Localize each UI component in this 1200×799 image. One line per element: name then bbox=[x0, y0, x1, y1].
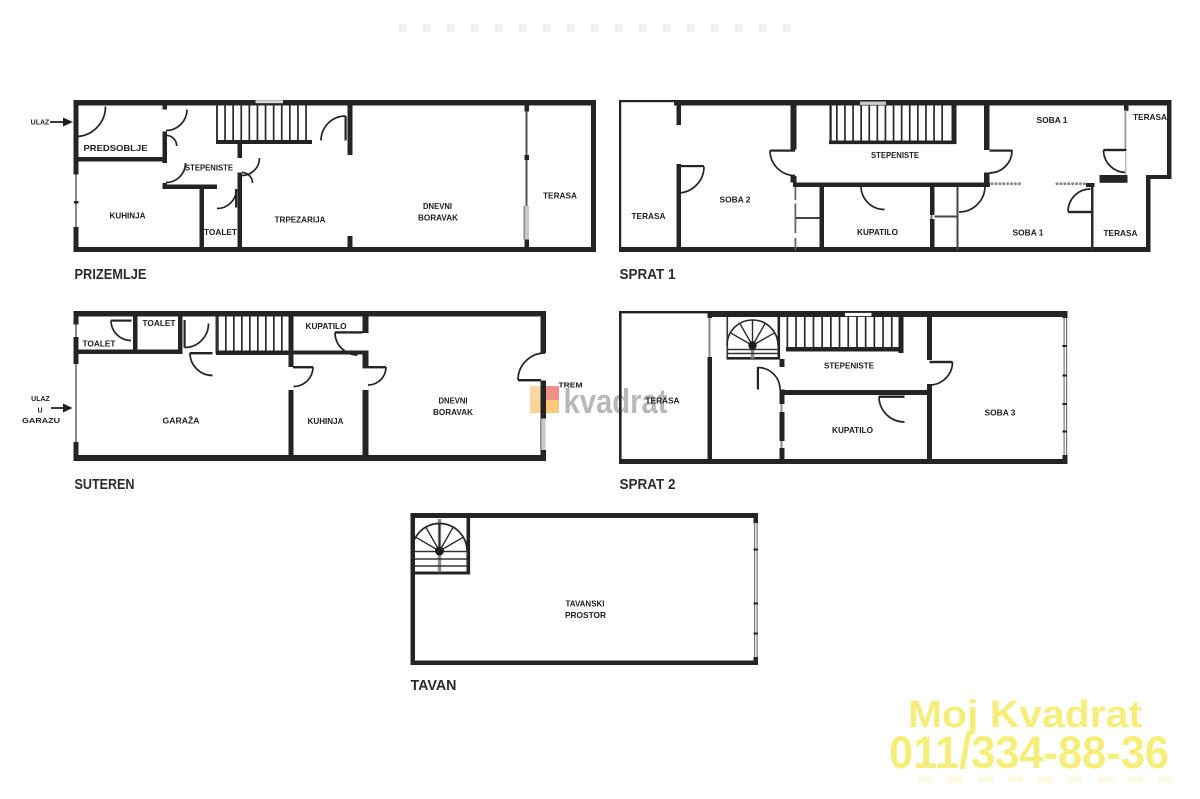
svg-text:SOBA 1: SOBA 1 bbox=[1037, 115, 1068, 125]
svg-text:STEPENISTE: STEPENISTE bbox=[871, 150, 919, 160]
svg-text:SOBA 2: SOBA 2 bbox=[720, 195, 751, 205]
svg-text:U: U bbox=[37, 408, 42, 415]
svg-text:TERASA: TERASA bbox=[1104, 228, 1138, 238]
svg-text:TERASA: TERASA bbox=[632, 211, 666, 221]
svg-text:KUPATILO: KUPATILO bbox=[857, 227, 898, 237]
svg-text:PREDSOBLJE: PREDSOBLJE bbox=[84, 143, 148, 153]
svg-text:KUPATILO: KUPATILO bbox=[832, 425, 873, 435]
svg-text:TAVAN: TAVAN bbox=[411, 677, 457, 694]
svg-text:STEPENISTE: STEPENISTE bbox=[185, 163, 233, 173]
svg-text:SOBA 3: SOBA 3 bbox=[985, 408, 1016, 418]
svg-text:TERASA: TERASA bbox=[646, 396, 680, 406]
svg-text:PROSTOR: PROSTOR bbox=[565, 610, 606, 620]
svg-text:PRIZEMLJE: PRIZEMLJE bbox=[75, 266, 147, 283]
svg-text:TREM: TREM bbox=[559, 381, 583, 390]
svg-text:TOALET: TOALET bbox=[143, 318, 177, 328]
svg-text:SOBA 1: SOBA 1 bbox=[1013, 228, 1044, 238]
svg-text:STEPENISTE: STEPENISTE bbox=[824, 361, 874, 371]
svg-text:TERASA: TERASA bbox=[1133, 112, 1167, 122]
svg-text:BORAVAK: BORAVAK bbox=[433, 407, 474, 417]
svg-text:DNEVNI: DNEVNI bbox=[423, 201, 452, 211]
svg-text:BORAVAK: BORAVAK bbox=[418, 213, 459, 223]
svg-text:TOALET: TOALET bbox=[83, 339, 117, 349]
svg-text:TRPEZARIJA: TRPEZARIJA bbox=[275, 215, 326, 225]
svg-text:GARAŽA: GARAŽA bbox=[163, 415, 200, 426]
svg-text:KUHINJA: KUHINJA bbox=[110, 211, 146, 221]
svg-text:TAVANSKI: TAVANSKI bbox=[566, 599, 605, 609]
svg-text:KUPATILO: KUPATILO bbox=[306, 321, 347, 331]
svg-text:011/334-88-36: 011/334-88-36 bbox=[889, 727, 1169, 778]
svg-text:SPRAT 2: SPRAT 2 bbox=[620, 476, 676, 493]
svg-text:SPRAT 1: SPRAT 1 bbox=[620, 266, 676, 283]
svg-text:ULAZ: ULAZ bbox=[31, 396, 50, 403]
svg-text:DNEVNI: DNEVNI bbox=[439, 396, 468, 406]
svg-text:TOALET: TOALET bbox=[204, 227, 238, 237]
svg-text:KUHINJA: KUHINJA bbox=[308, 416, 344, 426]
svg-text:SUTEREN: SUTEREN bbox=[75, 476, 135, 493]
svg-text:TERASA: TERASA bbox=[543, 191, 577, 201]
svg-text:GARAZU: GARAZU bbox=[22, 418, 60, 425]
svg-text:ULAZ: ULAZ bbox=[31, 120, 50, 127]
